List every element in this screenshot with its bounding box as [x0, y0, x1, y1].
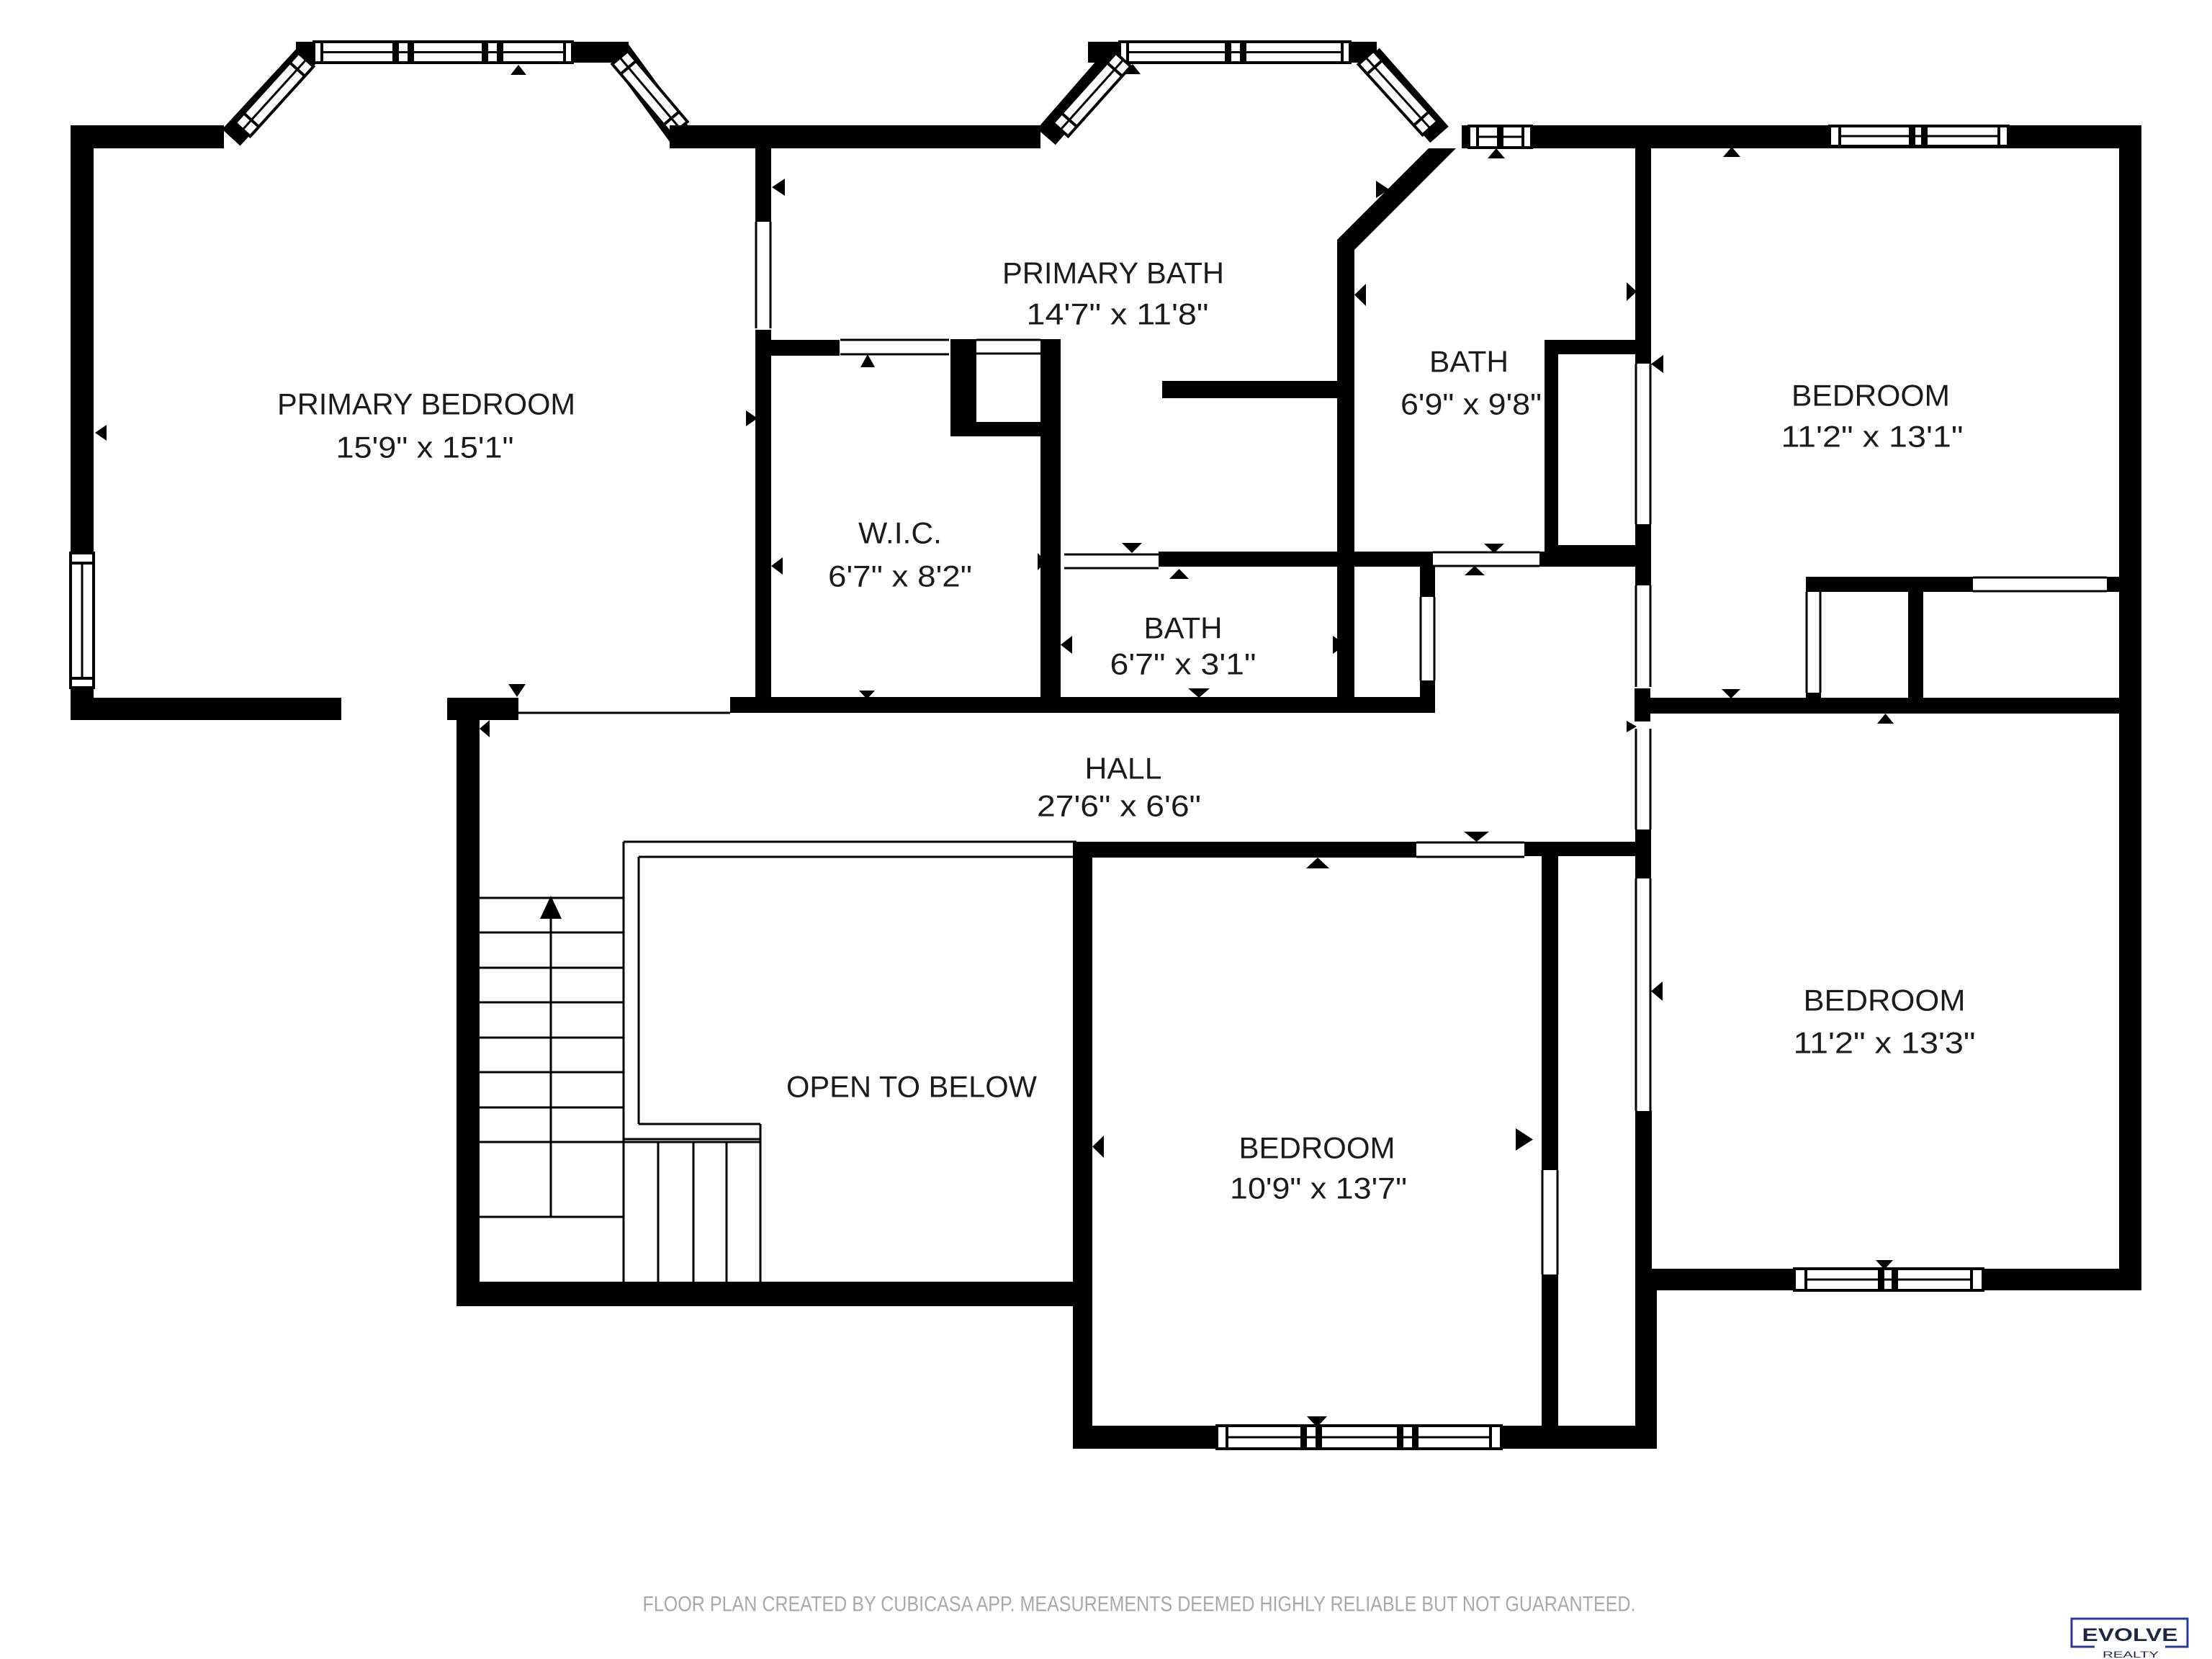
svg-text:BEDROOM: BEDROOM [1791, 379, 1950, 413]
svg-text:6'9" x 9'8": 6'9" x 9'8" [1401, 387, 1542, 421]
svg-text:PRIMARY BATH: PRIMARY BATH [1002, 256, 1224, 290]
svg-text:OPEN TO BELOW: OPEN TO BELOW [786, 1070, 1037, 1104]
svg-text:BATH: BATH [1429, 345, 1509, 379]
svg-text:14'7" x 11'8": 14'7" x 11'8" [1027, 297, 1209, 331]
svg-text:27'6" x 6'6": 27'6" x 6'6" [1037, 789, 1201, 823]
svg-text:11'2" x 13'3": 11'2" x 13'3" [1794, 1026, 1976, 1060]
svg-text:10'9" x 13'7": 10'9" x 13'7" [1230, 1172, 1407, 1205]
svg-text:BATH: BATH [1144, 611, 1223, 645]
svg-text:15'9" x 15'1": 15'9" x 15'1" [336, 431, 514, 464]
svg-text:6'7" x 8'2": 6'7" x 8'2" [828, 559, 972, 593]
svg-text:HALL: HALL [1085, 752, 1162, 786]
svg-text:EVOLVE: EVOLVE [2082, 1625, 2178, 1645]
svg-text:REALTY: REALTY [2103, 1650, 2159, 1659]
svg-text:PRIMARY BEDROOM: PRIMARY BEDROOM [277, 387, 575, 421]
svg-text:BEDROOM: BEDROOM [1804, 984, 1966, 1017]
svg-text:6'7" x 3'1": 6'7" x 3'1" [1110, 647, 1256, 681]
svg-text:BEDROOM: BEDROOM [1239, 1131, 1395, 1165]
svg-text:FLOOR PLAN CREATED BY CUBICASA: FLOOR PLAN CREATED BY CUBICASA APP. MEAS… [643, 1593, 1636, 1617]
svg-text:W.I.C.: W.I.C. [858, 516, 942, 550]
svg-text:11'2" x 13'1": 11'2" x 13'1" [1781, 420, 1964, 454]
